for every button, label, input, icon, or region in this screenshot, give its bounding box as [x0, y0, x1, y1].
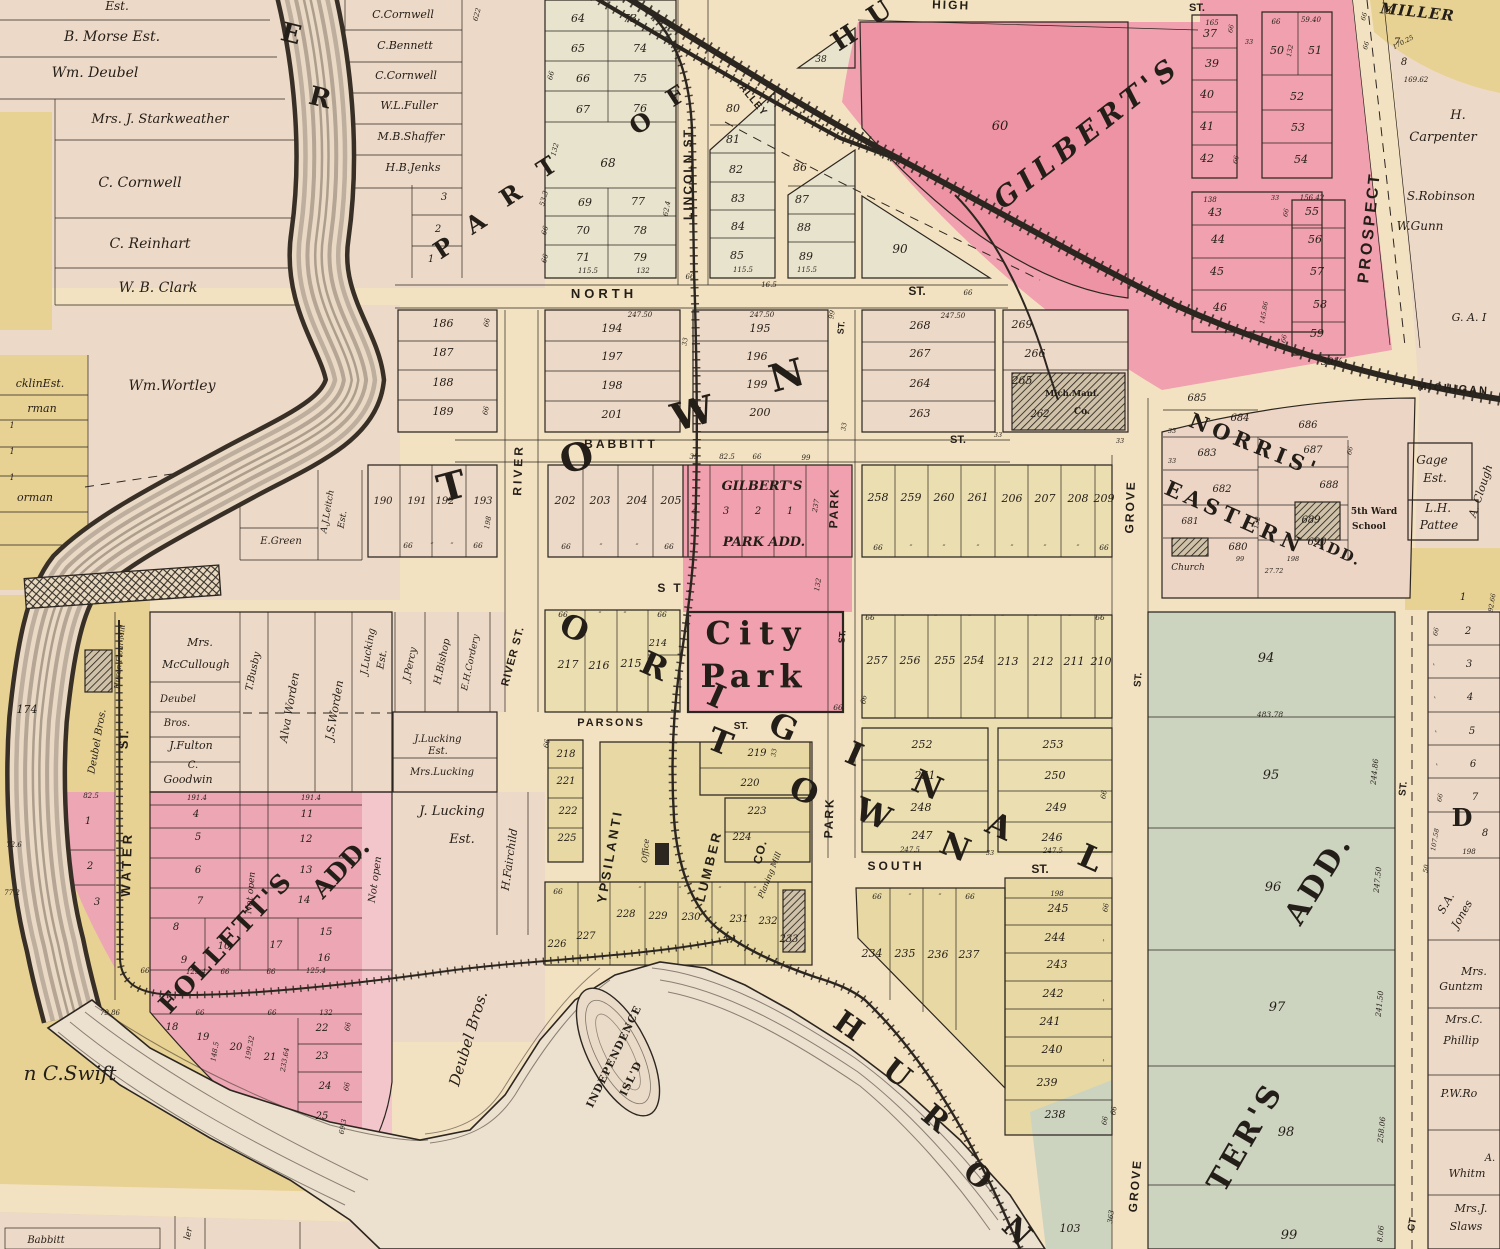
map-label: 23 — [315, 1051, 329, 1062]
map-label: ″ — [1069, 613, 1072, 622]
map-label: ST. — [836, 630, 847, 644]
map-label: 33 — [1116, 437, 1124, 445]
map-label: 222 — [557, 806, 577, 817]
map-label: ″ — [639, 885, 642, 894]
map-label: 13 — [300, 865, 313, 876]
map-label: 191 — [407, 496, 426, 507]
map-label: PARK — [826, 487, 841, 529]
map-label: 8 — [1401, 57, 1407, 68]
map-label: W.Gunn — [1397, 219, 1444, 233]
map-label: ST. — [116, 730, 132, 749]
map-label: GROVE — [1122, 480, 1138, 534]
map-label: W. B. Clark — [119, 280, 198, 296]
church-building — [1172, 538, 1208, 556]
map-label: 103 — [1060, 1222, 1081, 1235]
map-label: 264 — [909, 377, 931, 390]
map-label: 233 — [778, 934, 798, 945]
map-label: 66 — [753, 453, 762, 461]
map-label: 89 — [799, 250, 813, 263]
map-label: ST. — [908, 284, 925, 298]
map-label: 198 — [1462, 848, 1476, 856]
map-label: 125.4 — [306, 967, 326, 975]
map-label: 252 — [911, 738, 933, 751]
map-label: 3 — [1466, 659, 1472, 670]
map-label: Co. — [1074, 407, 1090, 417]
map-label: 8 — [1482, 828, 1488, 839]
map-label: 33 — [680, 337, 689, 347]
map-label: ″ — [935, 613, 938, 622]
map-label: C.Cornwell — [372, 8, 434, 21]
map-label: Goodwin — [163, 773, 212, 786]
map-label: 688 — [1319, 480, 1338, 491]
map-label: Deubel — [159, 694, 196, 705]
map-label: 213 — [997, 655, 1019, 668]
map-label: 8 — [173, 922, 179, 933]
map-label: 99 — [1236, 555, 1244, 563]
huron-flour-mill-building — [85, 650, 112, 692]
map-label: 78 — [633, 224, 647, 237]
map-label: 4 — [192, 809, 199, 820]
map-label: CT — [1406, 1217, 1419, 1232]
map-label: 56 — [1308, 233, 1322, 246]
map-label: ″ — [969, 613, 972, 622]
map-label: 2 — [86, 861, 93, 872]
map-label: 33 — [1168, 427, 1176, 435]
map-label: 2 — [1464, 626, 1471, 637]
map-label: C. Reinhart — [109, 236, 190, 252]
map-label: 66 — [965, 892, 975, 901]
map-label: 257 — [866, 654, 888, 667]
map-label: 247.50 — [940, 312, 966, 320]
map-label: 66 — [1109, 1105, 1118, 1115]
map-label: 265 — [1011, 374, 1033, 387]
map-label: Mrs.Lucking — [409, 767, 474, 778]
map-label: Mich.Manf. — [1045, 389, 1099, 399]
map-label: 205 — [660, 494, 682, 507]
map-label: 84 — [731, 220, 745, 233]
map-label: Babbitt — [26, 1235, 65, 1246]
map-label: 240 — [1041, 1043, 1063, 1056]
map-label: 254 — [963, 654, 985, 667]
map-label: J. Lucking — [416, 804, 484, 819]
map-label: 212 — [1032, 655, 1054, 668]
map-label: 242 — [1042, 987, 1064, 1000]
map-label: 201 — [601, 408, 623, 421]
map-label: 75 — [633, 72, 647, 85]
map-label: Church — [1171, 563, 1205, 573]
map-label: 94 — [1258, 651, 1275, 666]
map-label: 66 — [1231, 155, 1240, 165]
map-label: 263 — [909, 407, 931, 420]
map-label: 66 — [664, 542, 674, 551]
map-label: 66 — [964, 289, 973, 297]
map-label: 96 — [1265, 880, 1282, 895]
map-label: ″ — [636, 542, 639, 551]
map-label: E.Green — [259, 536, 302, 547]
map-label: W.L.Fuller — [380, 99, 438, 112]
map-label: J.Fulton — [167, 739, 212, 752]
map-label: 16.5 — [761, 281, 777, 289]
map-label: 44 — [1210, 233, 1225, 246]
map-label: 66 — [872, 892, 882, 901]
map-label: 19 — [197, 1032, 210, 1043]
map-label: 195 — [750, 322, 771, 335]
map-label: 21 — [263, 1052, 277, 1063]
map-label: 66 — [657, 610, 667, 619]
map-label: 269 — [1011, 318, 1033, 331]
map-label: Mrs. — [1460, 965, 1487, 978]
map-label: BABBITT — [584, 437, 658, 451]
map-label: 66 — [873, 543, 883, 552]
map-label: Est. — [104, 0, 129, 13]
map-label: 6 — [1385, 6, 1392, 17]
map-label: 253 — [1042, 738, 1064, 751]
map-label: ST. — [1397, 781, 1409, 797]
map-label: 66 — [221, 968, 230, 976]
map-label: ″ — [600, 542, 603, 551]
map-label: 39 — [1205, 57, 1219, 70]
map-label: ST. — [835, 321, 846, 335]
map-label: 228 — [615, 909, 635, 920]
map-label: H.B.Jenks — [385, 161, 441, 174]
map-label: 11 — [301, 809, 314, 820]
map-label: 16 — [318, 953, 331, 964]
map-label: 66 — [1281, 208, 1290, 218]
map-label: n C.Swift — [24, 1061, 118, 1085]
map-label: 73 — [623, 12, 637, 25]
map-label: Est. — [448, 832, 475, 847]
map-label: C.Bennett — [377, 39, 433, 52]
map-label: 8.06 — [1375, 1225, 1386, 1243]
map-label: 53 — [1291, 121, 1305, 134]
map-label: ST. — [1189, 2, 1205, 14]
map-label: 80 — [726, 102, 740, 115]
map-label: Est. — [1422, 471, 1447, 485]
map-label: 27.72 — [1264, 567, 1284, 575]
map-label: 43 — [1207, 206, 1222, 219]
map-label: 125.4 — [186, 968, 206, 976]
map-label: Est. — [427, 746, 448, 757]
map-label: HIGH — [932, 0, 970, 13]
map-label: 268 — [909, 319, 931, 332]
map-label: 81 — [726, 133, 740, 146]
map-label: 90 — [892, 242, 908, 256]
map-label: 186 — [433, 317, 454, 330]
map-label: 67 — [576, 103, 590, 116]
map-label: SOUTH — [868, 859, 925, 873]
map-label: 243 — [1046, 958, 1068, 971]
map-label: 132 — [636, 267, 650, 275]
map-label: 229 — [647, 911, 668, 922]
map-label: H. — [1449, 108, 1465, 123]
map-label: 247.5 — [1042, 847, 1064, 855]
map-label: ST. — [1132, 672, 1144, 688]
map-label: G. A. I — [1452, 311, 1487, 324]
map-label: 5th Ward — [1351, 507, 1398, 517]
map-label: PARK — [821, 797, 836, 839]
map-label: Mrs.J. — [1454, 1202, 1488, 1215]
map-label: 3 — [723, 506, 729, 517]
map-label: orman — [17, 491, 53, 504]
map-label: 46 — [1212, 301, 1227, 314]
map-label: 244 — [1044, 931, 1066, 944]
map-label: City — [706, 614, 809, 652]
map-label: 64 — [571, 12, 585, 25]
map-label: cklinEst. — [16, 377, 65, 390]
map-label: 33 — [1168, 457, 1176, 465]
map-label: 35 — [690, 453, 699, 461]
map-label: Phillip — [1442, 1034, 1479, 1047]
map-label: ″ — [1077, 543, 1080, 552]
map-label: 231 — [728, 914, 748, 925]
map-label: 87 — [795, 193, 809, 206]
map-label: ″ — [431, 541, 434, 550]
map-label: 680 — [1228, 542, 1248, 553]
map-label: 483.78 — [1256, 710, 1283, 719]
map-label: ″ — [910, 543, 913, 552]
map-label: 259 — [900, 491, 922, 504]
map-label: LINCOLN ST. — [681, 124, 695, 220]
map-label: 3 — [441, 192, 447, 203]
map-label: 206 — [1001, 492, 1023, 505]
map-label: 210 — [1090, 655, 1112, 668]
map-label: ″ — [754, 885, 757, 894]
map-label: Carpenter — [1409, 130, 1477, 145]
map-label: 10 — [218, 941, 231, 952]
map-label: 37 — [1203, 27, 1217, 40]
map-label: 197 — [602, 350, 623, 363]
map-label: 66 — [141, 967, 150, 975]
map-label: 82.5 — [83, 792, 99, 800]
map-label: 241 — [1039, 1015, 1061, 1028]
map-label: Whitm — [1449, 1167, 1486, 1180]
map-label: 219 — [746, 748, 767, 759]
map-label: ″ — [1044, 543, 1047, 552]
map-label: 226 — [546, 939, 567, 950]
map-label: 4 — [1466, 692, 1473, 703]
map-label: 232 — [757, 916, 777, 927]
map-label: 54 — [1294, 153, 1308, 166]
map-label: 24 — [318, 1081, 332, 1092]
map-label: 66 — [553, 887, 563, 896]
map-label: 194 — [602, 322, 623, 335]
map-label: 221 — [555, 776, 575, 787]
map-label: ST. — [1031, 862, 1048, 876]
map-label: Mrs. — [186, 636, 213, 649]
map-label: 50 — [1421, 864, 1430, 874]
map-label: 66 — [268, 1009, 277, 1017]
map-label: 9 — [181, 955, 188, 966]
map-label: 1 — [428, 254, 434, 265]
lumber-office-building — [655, 843, 669, 865]
map-label: 7 — [197, 896, 204, 907]
map-label: 20 — [229, 1042, 243, 1053]
map-label: 42 — [1199, 152, 1214, 165]
map-label: C.Cornwell — [375, 69, 437, 82]
map-label: 59 — [1310, 327, 1324, 340]
map-label: 5 — [195, 832, 201, 843]
map-label: 66 — [267, 968, 276, 976]
map-label: 15 — [320, 927, 333, 938]
map-label: 216 — [588, 659, 610, 672]
map-label: ″ — [1011, 543, 1014, 552]
map-label: 66 — [1435, 793, 1444, 803]
map-label: 204 — [626, 494, 648, 507]
map-label: 218 — [555, 749, 575, 760]
map-label: ″ — [624, 610, 627, 619]
map-label: 38 — [815, 55, 827, 65]
map-label: 66 — [1431, 627, 1440, 637]
map-label: 1 — [85, 816, 91, 827]
map-label: 33 — [986, 849, 994, 857]
map-label: 66 — [865, 613, 875, 622]
map-label: 217 — [557, 658, 579, 671]
map-label: 234 — [861, 947, 883, 960]
map-label: 191.4 — [301, 794, 321, 802]
map-label: 66 — [1226, 24, 1235, 34]
map-label: 258 — [867, 491, 889, 504]
map-label: 70 — [576, 224, 590, 237]
map-label: McCullough — [161, 658, 230, 671]
map-label: ″ — [977, 543, 980, 552]
map-label: 66 — [833, 703, 843, 712]
map-label: Gage — [1416, 453, 1448, 467]
map-label: 66 — [473, 541, 483, 550]
map-label: 51 — [1308, 44, 1322, 57]
map-label: 115.5 — [733, 266, 754, 274]
map-label: A. — [1484, 1153, 1495, 1164]
map-label: 66 — [196, 1009, 205, 1017]
map-label: 41 — [1199, 120, 1214, 133]
map-label: 189 — [433, 405, 454, 418]
map-label: 59½ — [1321, 357, 1343, 368]
map-label: 68 — [600, 156, 616, 170]
map-label: 33 — [1271, 194, 1279, 202]
map-label: 66 — [686, 273, 695, 281]
map-label: C. — [188, 760, 198, 771]
map-label: S.Robinson — [1407, 189, 1475, 203]
map-label: 33 — [1245, 38, 1253, 46]
map-label: 238 — [1044, 1108, 1066, 1121]
map-label: C. Cornwell — [98, 175, 181, 191]
map-label: Bros. — [163, 718, 190, 729]
map-label: 235 — [894, 947, 916, 960]
map-label: 82 — [729, 163, 743, 176]
map-label: RIVER — [510, 444, 526, 496]
map-label: 71 — [576, 251, 590, 264]
map-label: 69 — [578, 196, 592, 209]
map-label: 247.50 — [749, 311, 775, 319]
map-label: 97 — [1269, 1000, 1286, 1015]
map-label: 99 — [1281, 1228, 1298, 1243]
map-label: 685 — [1187, 393, 1206, 404]
map-label: 1 — [1460, 592, 1466, 603]
map-label: ″ — [679, 885, 682, 894]
map-label: PARSONS — [577, 717, 645, 729]
map-label: 86 — [793, 161, 807, 174]
map-label: 1 — [9, 421, 14, 430]
map-label: GILBERT'S — [722, 479, 803, 494]
map-label: 266 — [1024, 347, 1046, 360]
map-label: 138 — [1203, 196, 1217, 204]
map-label: 115.5 — [578, 267, 599, 275]
map-label: Slaws — [1450, 1220, 1483, 1233]
map-label: 33 — [839, 422, 848, 432]
map-label: 1 — [787, 506, 793, 517]
map-label: 174 — [17, 703, 38, 716]
map-label: 188 — [433, 376, 454, 389]
map-label: 255 — [934, 654, 956, 667]
map-label: 82.5 — [719, 453, 735, 461]
map-label: 6 — [1470, 759, 1477, 770]
map-label: 248 — [910, 801, 932, 814]
map-label: 689 — [1301, 515, 1321, 526]
map-label: 682 — [1212, 484, 1231, 495]
map-label: M.B.Shaffer — [376, 130, 445, 143]
map-label: 40 — [1199, 88, 1214, 101]
map-label: 79 — [633, 251, 647, 264]
map-label: 187 — [433, 346, 454, 359]
map-label: 95 — [1263, 768, 1280, 783]
map-label: 74 — [633, 42, 647, 55]
map-label: 227 — [575, 931, 596, 942]
map-label: 77 — [631, 195, 645, 208]
map-label: 202 — [554, 494, 576, 507]
map-label: 681 — [1181, 517, 1198, 527]
map-label: 65 — [571, 42, 585, 55]
map-label: 262 — [1029, 409, 1049, 420]
map-label: 247 — [911, 829, 933, 842]
map-label: ″ — [943, 543, 946, 552]
map-label: 4 — [691, 506, 698, 517]
map-label: 246 — [1041, 831, 1063, 844]
map-label: 66 — [1095, 613, 1105, 622]
map-label: 192 — [435, 496, 454, 507]
map-label: D — [1452, 803, 1473, 832]
map-label: 57 — [1310, 265, 1324, 278]
map-label: 209 — [1093, 492, 1115, 505]
map-label: WATER — [118, 831, 135, 897]
map-label: Mrs.C. — [1444, 1013, 1482, 1026]
map-label: 72.6 — [6, 841, 22, 849]
map-label: 193 — [473, 496, 492, 507]
plat-map-page: Est.B. Morse Est.Wm. DeubelMrs. J. Stark… — [0, 0, 1500, 1249]
map-label: 1 — [9, 473, 14, 482]
map-label: rman — [27, 402, 56, 415]
map-label: 45 — [1209, 265, 1224, 278]
map-label: 224 — [731, 832, 751, 843]
map-label: 211 — [1063, 655, 1085, 668]
map-label: 686 — [1298, 420, 1318, 431]
map-label: School — [1352, 522, 1387, 532]
map-label: 17 — [270, 940, 283, 951]
map-label: 260 — [933, 491, 955, 504]
map-label: 66 — [1099, 543, 1109, 552]
map-label: 198 — [602, 379, 623, 392]
map-label: 7 — [1472, 792, 1479, 803]
map-label: ″ — [1035, 613, 1038, 622]
map-label: 99 — [802, 454, 811, 462]
map-label: 2 — [754, 506, 761, 517]
map-label: 22 — [315, 1023, 329, 1034]
map-label: 236 — [927, 948, 949, 961]
map-label: 3 — [94, 897, 100, 908]
map-label: 59.40 — [1301, 16, 1322, 24]
map-label: ″ — [599, 885, 602, 894]
map-label: 207 — [1034, 492, 1056, 505]
map-label: Wm. Deubel — [52, 65, 139, 81]
map-label: 83 — [731, 192, 745, 205]
